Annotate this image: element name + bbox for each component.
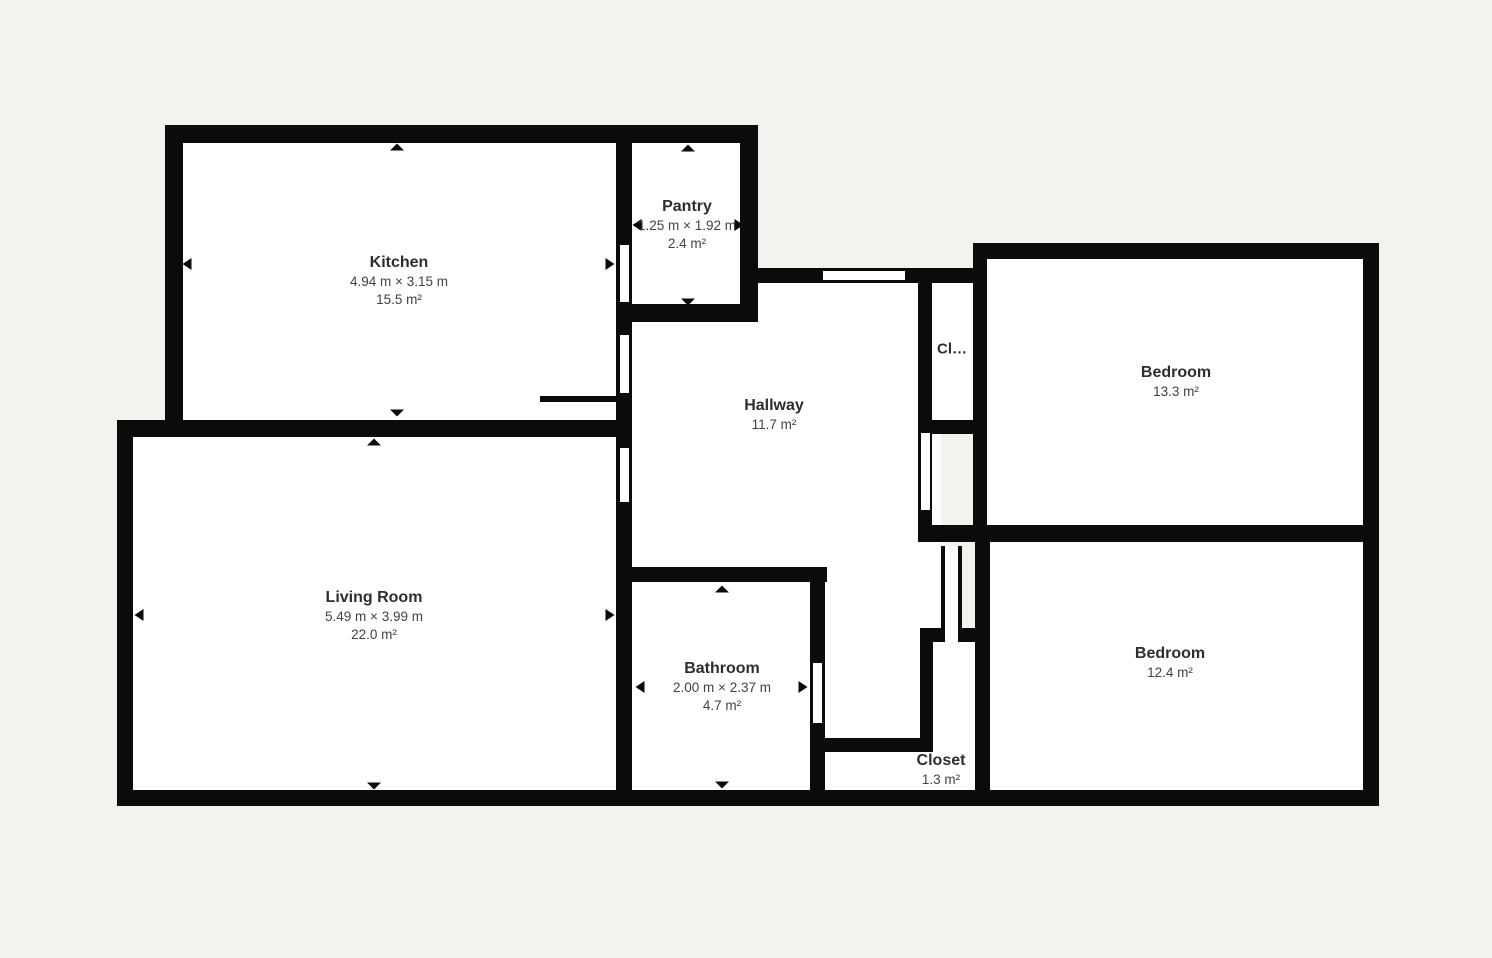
wall — [165, 125, 183, 437]
pantry-label: Pantry 1.25 m × 1.92 m 2.4 m² — [638, 196, 736, 252]
door-leaf-closet-lower — [941, 546, 962, 642]
bathroom-dim-arrow-right-icon — [799, 681, 808, 693]
wall — [632, 304, 758, 322]
room-dimensions: 5.49 m × 3.99 m — [325, 608, 423, 626]
wall — [616, 567, 827, 582]
bathroom-dim-arrow-left-icon — [636, 681, 645, 693]
room-area-value: 15.5 m² — [350, 291, 448, 309]
kitchen-dim-arrow-left-icon — [183, 258, 192, 270]
door-kitchen-hallway — [620, 335, 629, 393]
wall-counter-stub — [540, 396, 618, 402]
room-area-value: 2.4 m² — [638, 235, 736, 253]
wall — [920, 628, 933, 752]
wall — [973, 243, 987, 542]
living-room-dim-arrow-down-icon — [367, 783, 381, 790]
wall — [117, 420, 632, 437]
bedroom-1-label: Bedroom 13.3 m² — [1141, 362, 1211, 401]
bathroom-dim-arrow-down-icon — [715, 782, 729, 789]
living-room-dim-arrow-up-icon — [367, 439, 381, 446]
pantry-dim-arrow-up-icon — [681, 145, 695, 152]
door-living-room-hallway — [620, 448, 629, 502]
wall — [973, 243, 1379, 259]
wall — [117, 790, 1379, 806]
bathroom-dim-arrow-up-icon — [715, 586, 729, 593]
room-name: Bathroom — [673, 658, 771, 679]
bedroom-2-label: Bedroom 12.4 m² — [1135, 643, 1205, 682]
door-hallway-bedroom-1 — [921, 433, 930, 510]
room-area-value: 22.0 m² — [325, 626, 423, 644]
kitchen-dim-arrow-down-icon — [390, 410, 404, 417]
room-name: Pantry — [638, 196, 736, 217]
room-name: Bedroom — [1135, 643, 1205, 664]
room-area-value: 1.3 m² — [917, 771, 966, 789]
room-dimensions: 1.25 m × 1.92 m — [638, 217, 736, 235]
room-area-value: 13.3 m² — [1141, 383, 1211, 401]
living-room-dim-arrow-left-icon — [135, 609, 144, 621]
room-area-value: 4.7 m² — [673, 697, 771, 715]
closet-upper-label: Cl… — [937, 339, 967, 360]
room-name: Kitchen — [350, 252, 448, 273]
room-area-value: 11.7 m² — [744, 416, 804, 434]
living-room-label: Living Room 5.49 m × 3.99 m 22.0 m² — [325, 587, 423, 643]
entry-door — [823, 271, 905, 280]
door-kitchen-pantry — [620, 245, 629, 302]
wall — [918, 525, 1379, 542]
room-area-closet-lower[interactable] — [933, 642, 977, 752]
wall — [975, 542, 990, 790]
room-dimensions: 4.94 m × 3.15 m — [350, 273, 448, 291]
bathroom-label: Bathroom 2.00 m × 2.37 m 4.7 m² — [673, 658, 771, 714]
room-name: Bedroom — [1141, 362, 1211, 383]
room-name: Cl… — [937, 339, 967, 360]
door-bathroom — [813, 663, 822, 723]
room-name: Hallway — [744, 395, 804, 416]
room-area-value: 12.4 m² — [1135, 664, 1205, 682]
living-room-dim-arrow-right-icon — [606, 609, 615, 621]
closet-lower-label: Closet 1.3 m² — [917, 750, 966, 789]
wall — [165, 125, 758, 143]
kitchen-label: Kitchen 4.94 m × 3.15 m 15.5 m² — [350, 252, 448, 308]
kitchen-dim-arrow-up-icon — [390, 144, 404, 151]
room-name: Closet — [917, 750, 966, 771]
room-dimensions: 2.00 m × 2.37 m — [673, 679, 771, 697]
pantry-dim-arrow-down-icon — [681, 299, 695, 306]
hallway-label: Hallway 11.7 m² — [744, 395, 804, 434]
floor-plan: Kitchen 4.94 m × 3.15 m 15.5 m² Pantry 1… — [0, 0, 1492, 958]
room-name: Living Room — [325, 587, 423, 608]
kitchen-dim-arrow-right-icon — [606, 258, 615, 270]
wall — [117, 420, 133, 806]
